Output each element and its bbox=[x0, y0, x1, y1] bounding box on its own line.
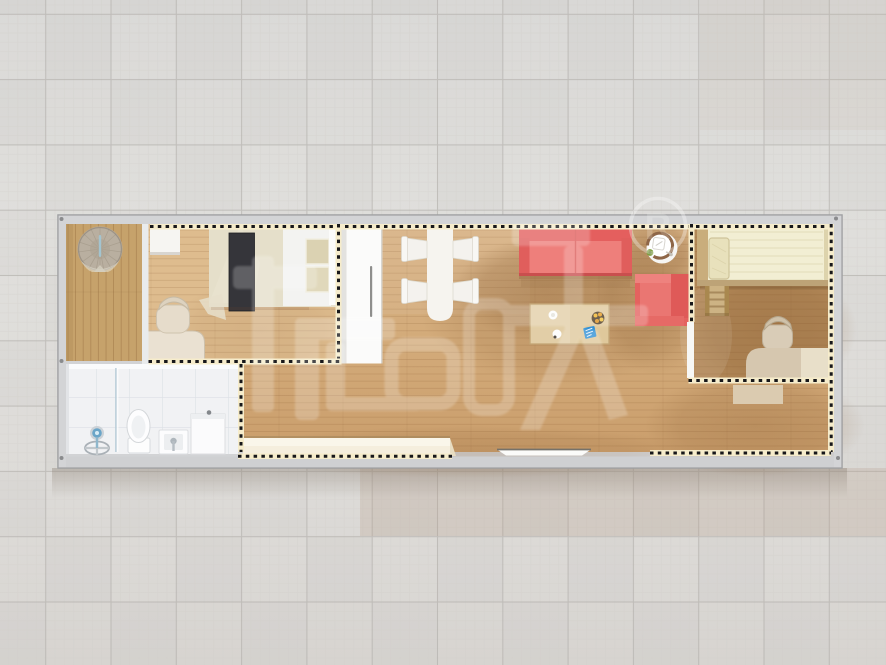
svg-text:R: R bbox=[645, 206, 672, 247]
